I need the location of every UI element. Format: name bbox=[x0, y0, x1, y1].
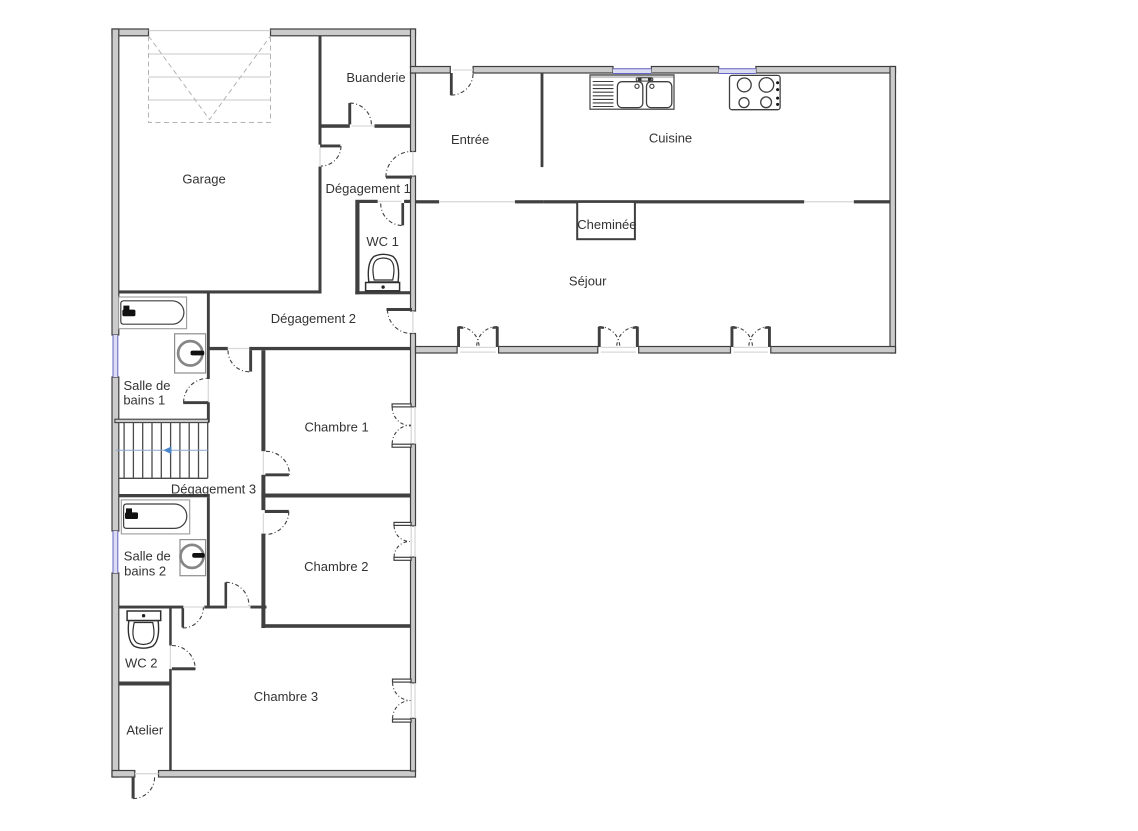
svg-text:Salle de: Salle de bbox=[124, 549, 171, 564]
svg-text:WC 1: WC 1 bbox=[366, 234, 399, 249]
svg-text:Dégagement 3: Dégagement 3 bbox=[171, 482, 256, 497]
svg-text:Salle de: Salle de bbox=[124, 378, 171, 393]
svg-text:bains 1: bains 1 bbox=[123, 393, 165, 408]
svg-text:Dégagement 1: Dégagement 1 bbox=[326, 181, 411, 196]
svg-text:Atelier: Atelier bbox=[126, 723, 164, 738]
svg-text:Séjour: Séjour bbox=[569, 274, 607, 289]
svg-text:Chambre 1: Chambre 1 bbox=[304, 419, 368, 434]
svg-text:Chambre 2: Chambre 2 bbox=[304, 559, 368, 574]
svg-text:Garage: Garage bbox=[182, 172, 225, 187]
svg-text:Cuisine: Cuisine bbox=[649, 131, 692, 146]
svg-text:Chambre 3: Chambre 3 bbox=[254, 689, 318, 704]
svg-text:Entrée: Entrée bbox=[451, 132, 489, 147]
svg-text:bains 2: bains 2 bbox=[124, 564, 166, 579]
svg-text:Dégagement 2: Dégagement 2 bbox=[271, 311, 356, 326]
svg-text:Buanderie: Buanderie bbox=[346, 70, 405, 85]
svg-text:WC 2: WC 2 bbox=[125, 655, 158, 670]
svg-text:Cheminée: Cheminée bbox=[577, 217, 636, 232]
